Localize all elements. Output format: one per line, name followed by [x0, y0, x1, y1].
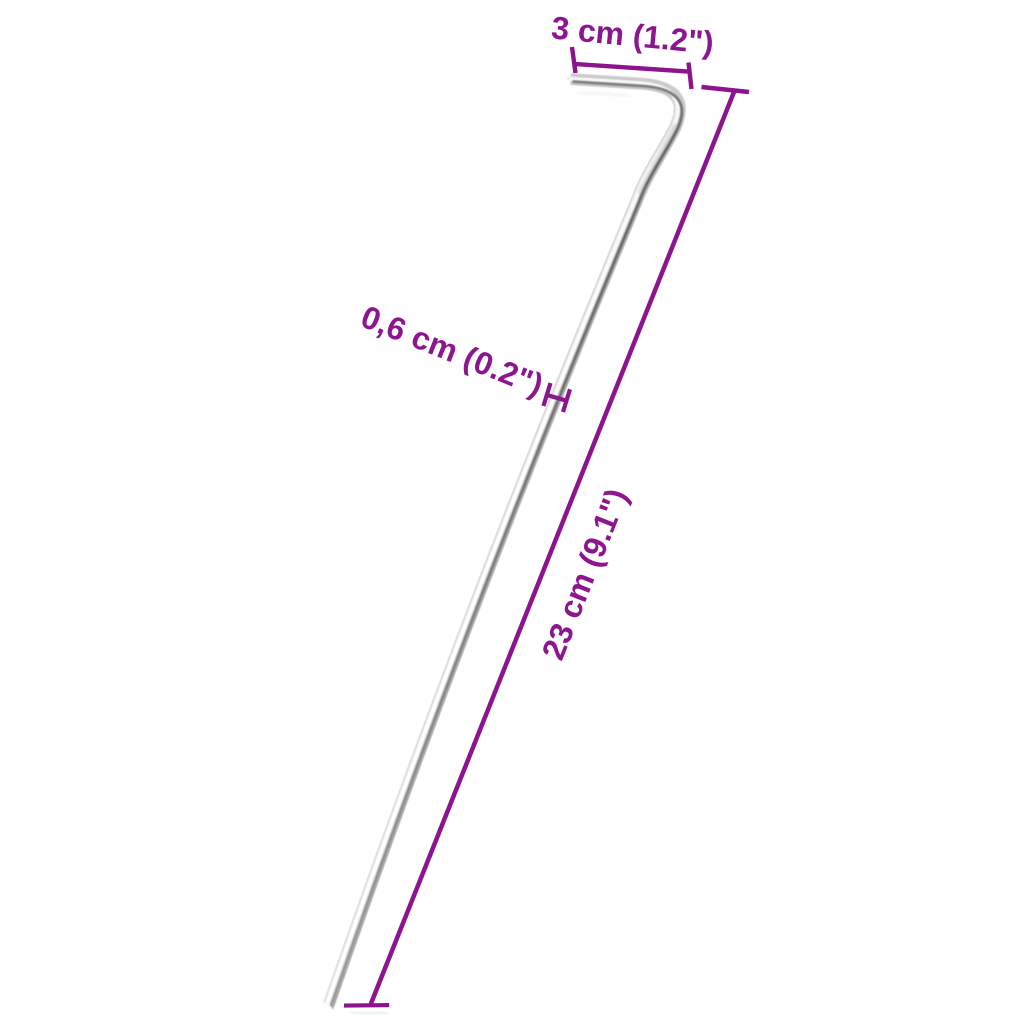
svg-text:0,6 cm (0.2"): 0,6 cm (0.2") — [356, 298, 548, 403]
svg-text:23 cm (9.1"): 23 cm (9.1") — [535, 483, 635, 664]
